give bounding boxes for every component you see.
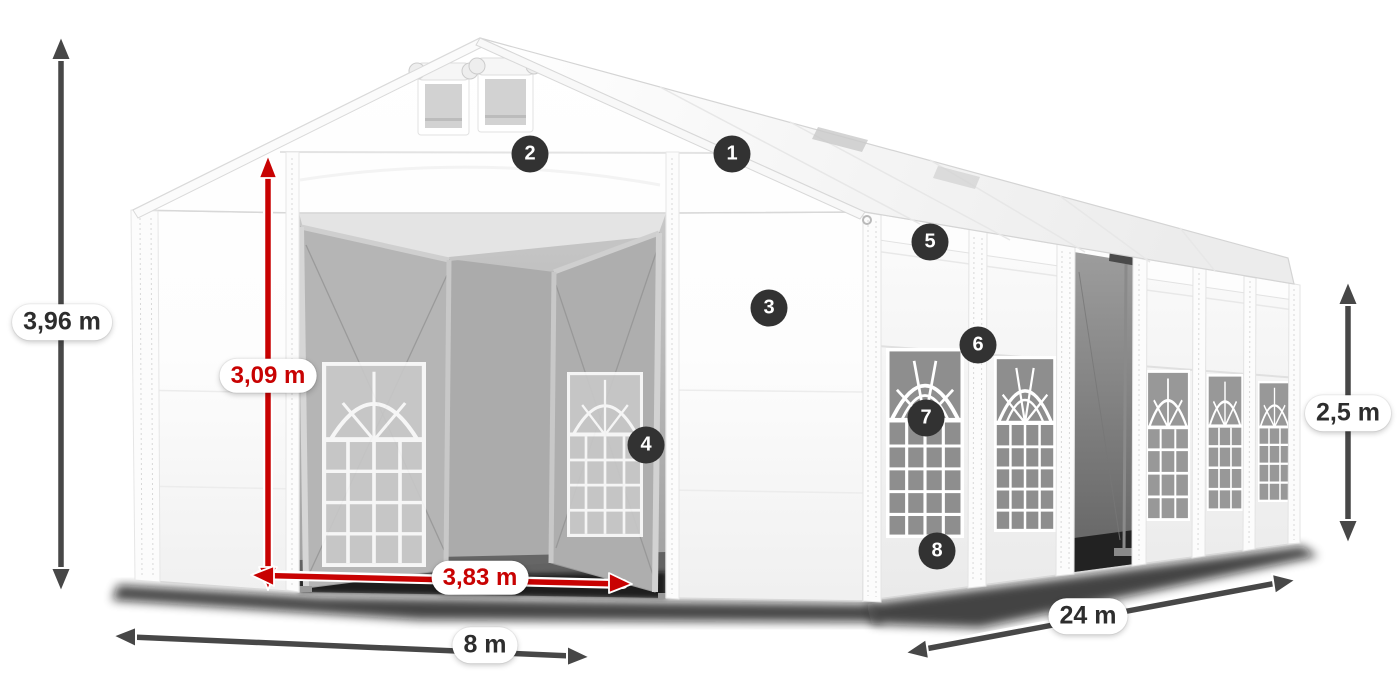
callout-badge-7: 7 [908,400,945,437]
tent-illustration [0,0,1400,700]
callout-badge-3: 3 [751,290,788,327]
callout-badge-5: 5 [912,224,949,261]
callout-badge-2: 2 [512,136,549,173]
side-open-bay [1074,250,1138,572]
callout-badge-6: 6 [960,327,997,364]
front-wall-right [666,212,865,601]
side-window-1 [886,348,964,538]
arrow-width [113,627,590,666]
side-window-3 [1146,370,1190,521]
callout-badge-4: 4 [628,427,665,464]
callout-badge-8: 8 [919,533,956,570]
side-window-2 [994,356,1056,532]
door-panel-right [551,233,659,592]
side-window-4 [1207,374,1243,511]
dimension-label-entrance-height: 3,09 m [220,359,317,393]
door-panel-left [301,227,449,588]
dimension-label-side-height: 2,5 m [1305,395,1391,431]
front-opening-interior [296,213,674,599]
callout-badge-1: 1 [714,136,751,173]
dimension-label-width: 8 m [452,627,517,663]
dimension-label-entrance-width: 3,83 m [432,561,529,595]
side-window-5 [1258,381,1291,502]
dimension-label-length: 24 m [1049,598,1128,634]
tent-dimensions-diagram: 3,96 m 3,09 m 3,83 m 8 m 24 m 2,5 m 1 2 … [0,0,1400,700]
dimension-label-total-height: 3,96 m [12,304,112,340]
